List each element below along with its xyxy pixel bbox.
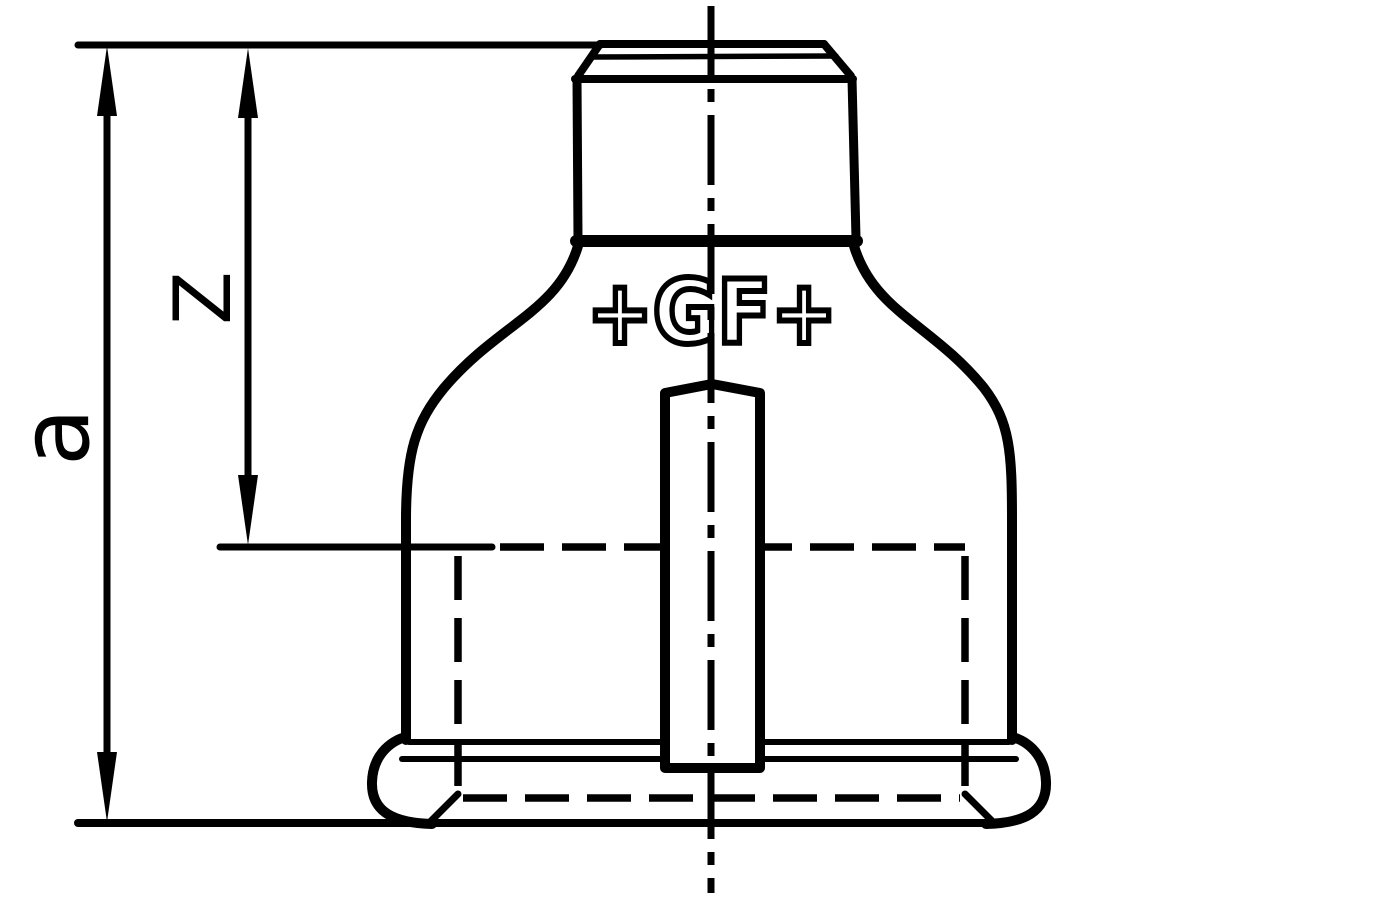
dimension-z: Z (159, 48, 258, 545)
dimension-a: a (1, 46, 117, 822)
spigot-chamfer-left (578, 44, 600, 76)
spigot-side-right (852, 79, 856, 238)
dimension-a-label: a (1, 408, 111, 466)
dimension-z-label: Z (159, 271, 249, 324)
dimension-z-arrow-bottom (238, 475, 258, 545)
drawing-canvas: +GF+ a Z (0, 0, 1400, 900)
body-profile-right (854, 246, 1012, 740)
body-profile-left (406, 246, 578, 740)
dimension-a-arrow-top (97, 46, 117, 116)
spigot-chamfer-right (824, 44, 851, 76)
spigot-side-left (577, 79, 578, 238)
mouth-chamfer-left (431, 794, 458, 821)
bottom-bead-right (986, 737, 1046, 824)
dimension-z-arrow-top (238, 48, 258, 118)
bottom-bead-left (372, 737, 432, 824)
technical-drawing: +GF+ a Z (0, 0, 1400, 900)
dimension-a-arrow-bottom (97, 752, 117, 822)
mouth-chamfer-right (965, 794, 992, 821)
